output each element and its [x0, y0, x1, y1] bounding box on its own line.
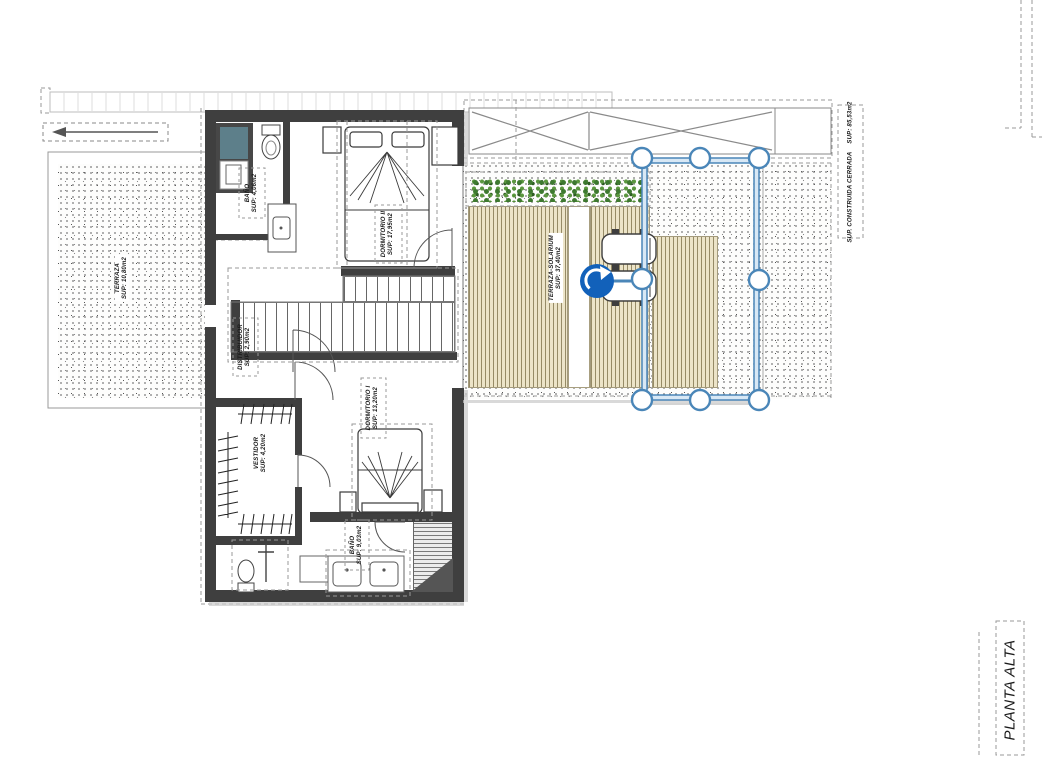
handle-bottom-right[interactable] — [749, 390, 769, 410]
handle-top-right[interactable] — [749, 148, 769, 168]
selection-handles — [632, 148, 769, 410]
handle-mid-right[interactable] — [749, 270, 769, 290]
selection-overlay — [0, 0, 1042, 757]
handle-bottom-mid[interactable] — [690, 390, 710, 410]
handle-bottom-left[interactable] — [632, 390, 652, 410]
selection-shadow — [646, 162, 763, 404]
handle-top-mid[interactable] — [690, 148, 710, 168]
floorplan-canvas[interactable]: TERRAZASUP: 10,80m2 BAÑOSUP: 4,06m2 DORM… — [0, 0, 1042, 757]
handle-mid-left[interactable] — [632, 269, 652, 289]
selection-box-inner — [647, 163, 754, 395]
rotate-handle-icon[interactable] — [580, 264, 614, 298]
selection-glow — [645, 161, 757, 398]
handle-top-left[interactable] — [632, 148, 652, 168]
selection-box[interactable] — [642, 158, 759, 400]
